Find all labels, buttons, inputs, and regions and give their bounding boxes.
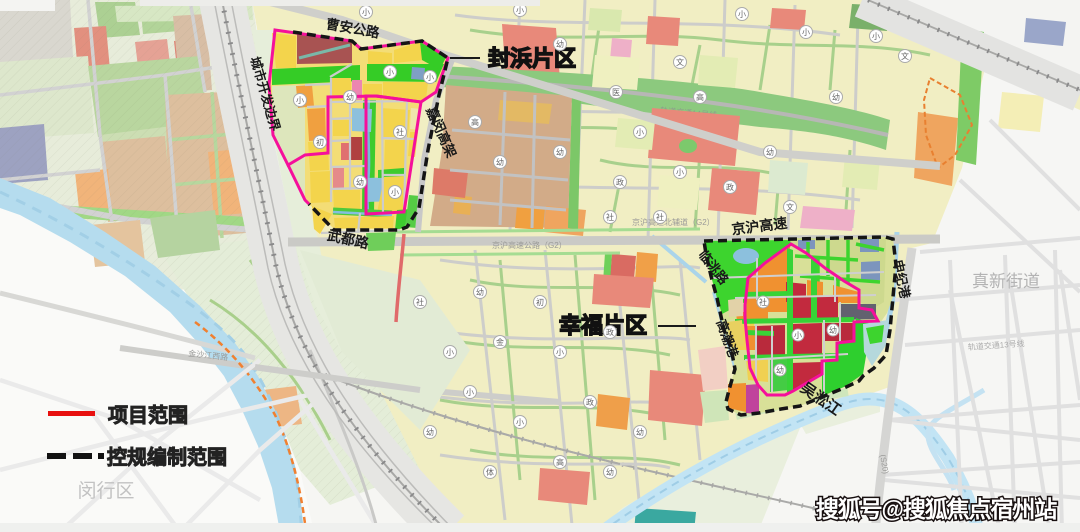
svg-text:京沪高速公路（G2）: 京沪高速公路（G2）	[492, 240, 567, 250]
svg-text:幼: 幼	[476, 287, 484, 297]
svg-text:幼: 幼	[426, 427, 434, 437]
svg-text:小: 小	[636, 128, 644, 137]
svg-text:幼: 幼	[776, 365, 784, 375]
svg-text:幼: 幼	[556, 147, 564, 157]
svg-text:幸福片区: 幸福片区	[559, 313, 647, 338]
svg-text:初: 初	[536, 297, 544, 307]
svg-text:小: 小	[466, 388, 474, 397]
svg-text:幼: 幼	[606, 467, 614, 477]
svg-text:小: 小	[362, 8, 370, 17]
svg-text:社: 社	[656, 212, 664, 222]
svg-text:高: 高	[556, 457, 564, 467]
svg-text:京沪高速北辅道（G2）: 京沪高速北辅道（G2）	[632, 217, 715, 227]
svg-text:真新街道: 真新街道	[972, 272, 1040, 291]
svg-text:政: 政	[616, 177, 624, 187]
svg-text:初: 初	[316, 137, 324, 147]
svg-text:体: 体	[486, 467, 494, 477]
svg-text:幼: 幼	[636, 427, 644, 437]
svg-text:政: 政	[606, 327, 614, 337]
svg-text:幼: 幼	[496, 157, 504, 167]
svg-text:小: 小	[738, 10, 746, 19]
svg-text:幼: 幼	[346, 92, 354, 102]
svg-text:小: 小	[794, 331, 802, 340]
svg-text:小: 小	[296, 96, 304, 105]
svg-text:幼: 幼	[556, 39, 564, 49]
svg-text:社: 社	[759, 297, 767, 307]
svg-text:小: 小	[556, 348, 564, 357]
svg-text:社: 社	[416, 297, 424, 307]
svg-text:小: 小	[516, 418, 524, 427]
svg-text:社: 社	[396, 127, 404, 137]
svg-text:幼: 幼	[356, 177, 364, 187]
svg-text:高: 高	[471, 117, 479, 127]
svg-text:项目范围: 项目范围	[108, 403, 188, 427]
svg-text:幼: 幼	[766, 147, 774, 157]
svg-text:社: 社	[606, 212, 614, 222]
svg-text:小: 小	[802, 28, 810, 37]
svg-text:金: 金	[496, 337, 504, 347]
svg-text:闵行区: 闵行区	[77, 480, 134, 502]
svg-text:高: 高	[696, 92, 704, 102]
svg-text:小: 小	[446, 348, 454, 357]
svg-text:文: 文	[901, 51, 909, 61]
svg-text:政: 政	[586, 397, 594, 407]
svg-text:小: 小	[676, 168, 684, 177]
svg-text:小: 小	[386, 68, 394, 77]
svg-text:小: 小	[872, 32, 880, 41]
svg-text:小: 小	[391, 188, 399, 197]
svg-text:控规编制范围: 控规编制范围	[107, 445, 227, 469]
svg-text:文: 文	[676, 57, 684, 67]
svg-text:搜狐号@搜狐焦点宿州站: 搜狐号@搜狐焦点宿州站	[816, 496, 1057, 522]
svg-text:幼: 幼	[829, 325, 837, 335]
svg-text:政: 政	[726, 182, 734, 192]
svg-text:幼: 幼	[832, 92, 840, 102]
svg-text:文: 文	[786, 202, 794, 212]
svg-text:医: 医	[612, 88, 620, 97]
svg-text:小: 小	[426, 73, 434, 82]
svg-text:小: 小	[516, 6, 524, 15]
